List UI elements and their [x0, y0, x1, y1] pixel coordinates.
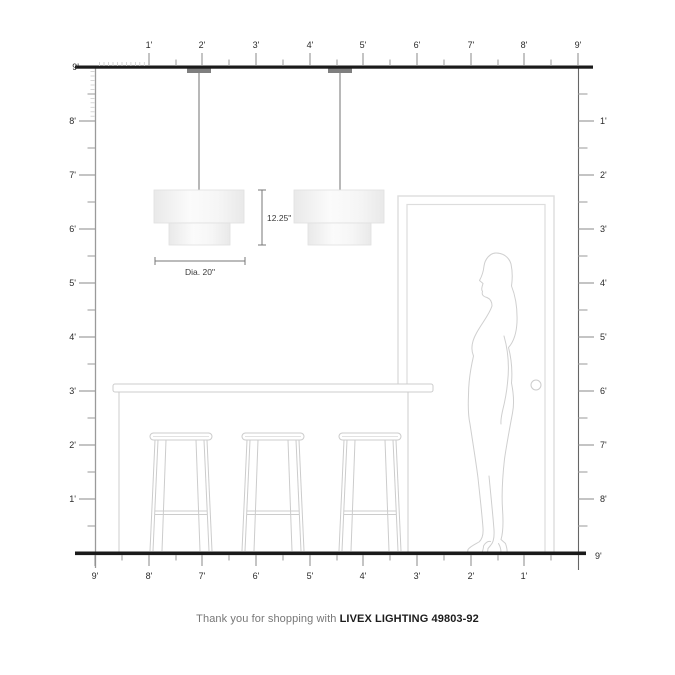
- ruler-label: 9': [72, 62, 79, 72]
- top-ruler-labels: 1' 2' 3' 4' 5' 6' 7' 8' 9': [146, 40, 582, 50]
- ruler-label: 2': [600, 170, 607, 180]
- ruler-label: 3': [600, 224, 607, 234]
- ruler-label: 7': [468, 40, 475, 50]
- pendant-shade-top-tier-1: [154, 190, 244, 223]
- product-dimension-diagram: 12.25" Dia. 20" 1' 2' 3' 4' 5': [0, 0, 675, 675]
- right-ruler-ticks: [578, 94, 594, 526]
- pendant-shade-top-tier-2: [294, 190, 384, 223]
- ruler-label: 3': [253, 40, 260, 50]
- ruler-label: 1': [600, 116, 607, 126]
- ruler-label: 2': [69, 440, 76, 450]
- left-ruler-ticks: [79, 72, 95, 527]
- ruler-label: 5': [307, 571, 314, 581]
- ruler-label: 2': [199, 40, 206, 50]
- ruler-label: 3': [414, 571, 421, 581]
- bottom-ruler-labels: 9' 8' 7' 6' 5' 4' 3' 2' 1': [92, 571, 528, 581]
- left-ruler-labels: 9' 8' 7' 6' 5' 4' 3' 2' 1': [69, 62, 79, 504]
- ruler-label: 5': [360, 40, 367, 50]
- ruler-label: 3': [69, 386, 76, 396]
- pendant-shade-bottom-tier-2: [308, 223, 371, 245]
- ruler-label: 2': [468, 571, 475, 581]
- ruler-label: 4': [307, 40, 314, 50]
- door-inner-panel: [407, 205, 545, 554]
- woman-silhouette: [468, 253, 518, 553]
- ruler-label: 9': [575, 40, 582, 50]
- ruler-label: 6': [69, 224, 76, 234]
- kitchen-island: [113, 384, 433, 553]
- ruler-label: 8': [69, 116, 76, 126]
- ruler-label: 7': [199, 571, 206, 581]
- ceiling-line: [75, 66, 593, 69]
- ruler-label: 4': [360, 571, 367, 581]
- floor-line: [75, 552, 586, 556]
- silhouette-arm: [501, 336, 509, 424]
- shade-diameter-label: Dia. 20": [185, 267, 215, 277]
- ruler-label: 4': [69, 332, 76, 342]
- door-knob: [531, 380, 541, 390]
- top-inch-ticks: [100, 62, 145, 66]
- silhouette-back-outline: [496, 253, 517, 553]
- ruler-label: 4': [600, 278, 607, 288]
- ruler-label: 9': [595, 551, 602, 561]
- ruler-label: 8': [146, 571, 153, 581]
- ruler-label: 9': [92, 571, 99, 581]
- bottom-ruler-ticks: [95, 555, 551, 566]
- top-ruler-ticks: [100, 53, 579, 66]
- shade-height-label: 12.25": [267, 213, 291, 223]
- ruler-label: 8': [600, 494, 607, 504]
- door: [398, 196, 554, 553]
- island-countertop: [113, 384, 433, 392]
- ruler-label: 6': [600, 386, 607, 396]
- footer-prefix: Thank you for shopping with: [196, 613, 339, 625]
- ruler-label: 5': [69, 278, 76, 288]
- ruler-label: 5': [600, 332, 607, 342]
- footer-caption: Thank you for shopping with LIVEX LIGHTI…: [0, 613, 675, 625]
- right-ruler-labels: 1' 2' 3' 4' 5' 6' 7' 8' 9': [595, 116, 607, 561]
- ruler-label: 1': [69, 494, 76, 504]
- diagram-svg: 12.25" Dia. 20" 1' 2' 3' 4' 5': [0, 0, 675, 675]
- ruler-label: 6': [253, 571, 260, 581]
- footer-brand-model: LIVEX LIGHTING 49803-92: [340, 613, 479, 625]
- ruler-label: 6': [414, 40, 421, 50]
- ruler-label: 7': [69, 170, 76, 180]
- ruler-label: 7': [600, 440, 607, 450]
- ruler-label: 1': [521, 571, 528, 581]
- door-outer-frame: [398, 196, 554, 553]
- ruler-label: 8': [521, 40, 528, 50]
- pendant-shade-bottom-tier-1: [169, 223, 230, 245]
- ruler-label: 1': [146, 40, 153, 50]
